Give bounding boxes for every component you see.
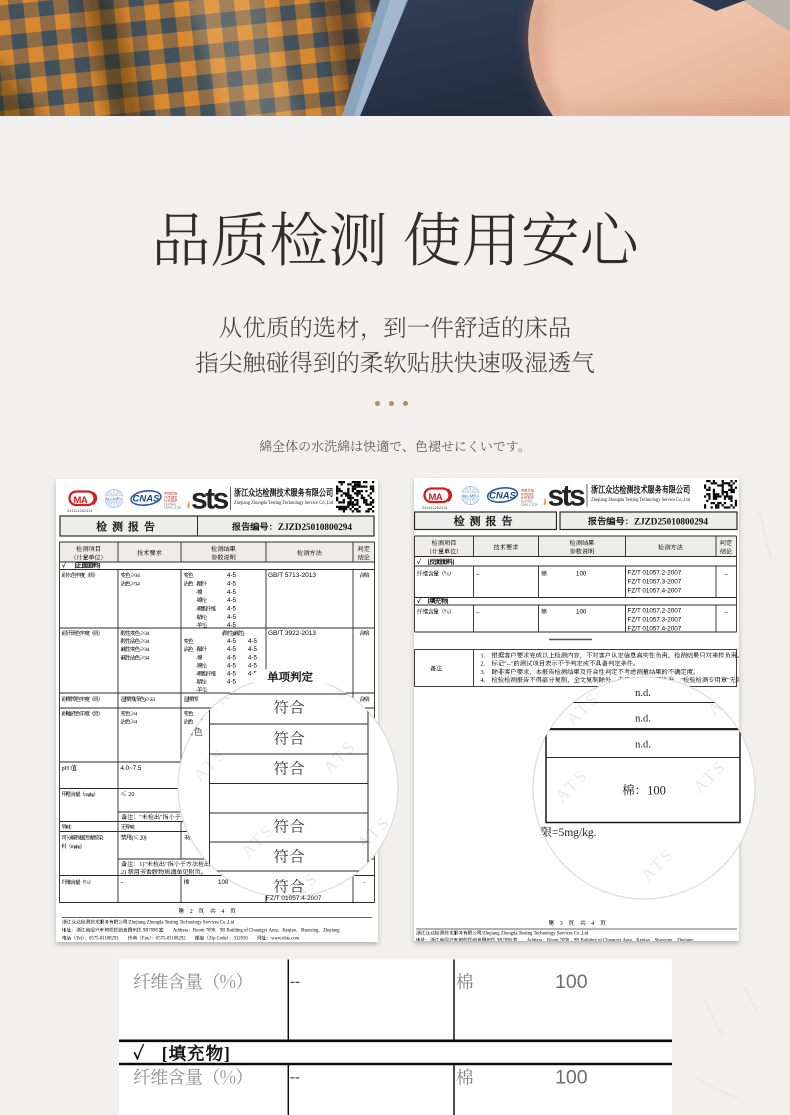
svg-text:-锦纶: -锦纶	[196, 661, 208, 669]
svg-text:符合: 符合	[273, 696, 305, 718]
svg-text:纤维含量（%）: 纤维含量（%）	[416, 607, 454, 616]
svg-text:2) 禁用芳香胺物质清单见附页。: 2) 禁用芳香胺物质清单见附页。	[121, 867, 207, 876]
svg-text:-腈纶: -腈纶	[196, 613, 207, 621]
svg-text:地址：浙江省绍兴市柯桥区创意园东区 9B7098 室 Ad: 地址：浙江省绍兴市柯桥区创意园东区 9B7098 室 Address：Room …	[415, 937, 694, 944]
svg-text:备注："未检出"指小于: 备注："未检出"指小于	[121, 812, 182, 821]
svg-text:100: 100	[218, 879, 229, 886]
svg-text:沾色: 沾色	[184, 645, 195, 653]
svg-text:CNAS L/1726: CNAS L/1726	[521, 503, 539, 507]
svg-text:4-5: 4-5	[227, 654, 237, 661]
svg-text:技术要求: 技术要求	[494, 543, 520, 552]
svg-text:棉: 棉	[456, 969, 474, 994]
svg-text:n.d.: n.d.	[635, 714, 651, 725]
svg-text:4-5: 4-5	[227, 597, 237, 604]
svg-text:4-5: 4-5	[227, 638, 237, 645]
svg-text:n.d.: n.d.	[635, 740, 651, 751]
svg-text:耐摩擦色牢度（级）: 耐摩擦色牢度（级）	[62, 695, 103, 703]
svg-text:4-5: 4-5	[227, 679, 237, 686]
svg-text:酸性:沾色 ≥3-4: 酸性:沾色 ≥3-4	[121, 637, 150, 645]
svg-text:(酸性)(碱性): (酸性)(碱性)	[222, 629, 245, 637]
svg-text:FZ/T 01057.4-2007: FZ/T 01057.4-2007	[628, 626, 682, 633]
svg-text:-锦纶: -锦纶	[196, 596, 208, 604]
svg-text:GB/T 5713-2013: GB/T 5713-2013	[268, 572, 316, 579]
svg-text:FZ/T 01057.4-2007: FZ/T 01057.4-2007	[628, 588, 682, 595]
svg-text:备注: 备注	[430, 664, 442, 673]
svg-text:100: 100	[555, 971, 588, 993]
svg-text:ilac-MRA: ilac-MRA	[105, 496, 123, 501]
svg-text:无异味: 无异味	[121, 823, 136, 831]
svg-text:-醋纤: -醋纤	[196, 645, 207, 653]
svg-text:检测方法: 检测方法	[297, 548, 323, 557]
svg-text:CNAS L/1726: CNAS L/1726	[164, 506, 182, 510]
svg-text:结论: 结论	[720, 547, 732, 556]
svg-text:结论: 结论	[358, 553, 370, 562]
svg-text:4-5: 4-5	[227, 572, 237, 579]
svg-text:棉: 棉	[541, 569, 547, 578]
svg-text:符合: 符合	[273, 815, 305, 837]
svg-text:100: 100	[576, 609, 587, 616]
svg-text:4-5: 4-5	[248, 662, 258, 669]
svg-text:报告编号：ZJZD25010800294: 报告编号：ZJZD25010800294	[231, 519, 352, 533]
svg-text:沾色: 沾色	[184, 718, 195, 726]
svg-text:变色: 变色	[184, 637, 195, 645]
svg-text:4-5: 4-5	[227, 606, 237, 613]
svg-text:4-5: 4-5	[227, 671, 237, 678]
svg-text:参数说明: 参数说明	[570, 547, 595, 556]
svg-text:[正面面料]: [正面面料]	[75, 561, 101, 570]
svg-text:FZ/T 01057.3-2007: FZ/T 01057.3-2007	[628, 617, 682, 624]
svg-text:≤ 20: ≤ 20	[121, 789, 135, 798]
svg-text:FZ/T 01057.2-2007: FZ/T 01057.2-2007	[628, 608, 682, 615]
svg-text:100: 100	[576, 571, 587, 578]
svg-text:-聚酯纤维: -聚酯纤维	[196, 670, 216, 678]
svg-text:碱性:沾色 ≥3-4: 碱性:沾色 ≥3-4	[120, 653, 150, 661]
svg-text:4-5: 4-5	[227, 614, 237, 621]
svg-text:耐水色牢度（级）: 耐水色牢度（级）	[62, 571, 98, 579]
svg-text:技术要求: 技术要求	[137, 548, 163, 557]
svg-text:符合: 符合	[273, 875, 305, 897]
svg-text:4-5: 4-5	[227, 580, 237, 587]
svg-text:湿摩擦(深色)≥ 2-3: 湿摩擦(深色)≥ 2-3	[121, 695, 156, 703]
svg-text:合格: 合格	[359, 629, 370, 637]
svg-text:MA: MA	[74, 495, 88, 506]
svg-text:[反面面料]: [反面面料]	[428, 557, 455, 566]
svg-text:纤维含量（%）: 纤维含量（%）	[416, 569, 454, 578]
svg-text:4.0~7.5: 4.0~7.5	[121, 765, 142, 772]
svg-text:禁用(≤ 20): 禁用(≤ 20)	[121, 833, 147, 842]
svg-text:检测方法: 检测方法	[658, 543, 684, 552]
svg-text:浙江众达检测技术服务有限公司: 浙江众达检测技术服务有限公司	[234, 485, 333, 499]
svg-text:浙江众达检测技术服务有限公司/Zhejiang Zhongd: 浙江众达检测技术服务有限公司/Zhejiang Zhongda Testing …	[62, 919, 235, 926]
svg-text:耐汗渍色牢度（级）: 耐汗渍色牢度（级）	[62, 629, 103, 637]
svg-text:4-5: 4-5	[227, 662, 237, 669]
svg-text:变色 ≥3-4: 变色 ≥3-4	[121, 571, 141, 579]
svg-text:n.d.: n.d.	[635, 688, 651, 699]
svg-text:可分解致癌芳香胺染: 可分解致癌芳香胺染	[62, 834, 104, 842]
svg-text:ilac-MRA: ilac-MRA	[462, 493, 480, 498]
svg-text:241111262431: 241111262431	[67, 508, 94, 513]
svg-text:-羊毛: -羊毛	[196, 621, 207, 629]
svg-text:Zhejiang Zhongda Testing Techn: Zhejiang Zhongda Testing Technology Serv…	[591, 498, 691, 503]
svg-text:沾色 ≥4: 沾色 ≥4	[121, 718, 138, 726]
svg-text:GB/T 3922-2013: GB/T 3922-2013	[268, 630, 316, 637]
svg-text:检测报告: 检测报告	[454, 513, 518, 529]
svg-text:-醋纤: -醋纤	[196, 579, 207, 587]
svg-text:Zhejiang Zhongda Testing Techn: Zhejiang Zhongda Testing Technology Serv…	[234, 501, 334, 506]
svg-text:地址：浙江省绍兴市柯桥区创意园东区 9B7098 室 Ad: 地址：浙江省绍兴市柯桥区创意园东区 9B7098 室 Address：Room …	[61, 927, 340, 934]
svg-text:sts: sts	[191, 483, 229, 516]
svg-text:料（mg/kg）: 料（mg/kg）	[62, 842, 85, 850]
svg-text:FZ/T 01057.3-2007: FZ/T 01057.3-2007	[628, 579, 682, 586]
svg-text:（计量单位）: （计量单位）	[426, 547, 462, 556]
svg-text:-羊毛: -羊毛	[196, 686, 207, 694]
svg-text:沾色: 沾色	[184, 579, 195, 587]
svg-text:241111262431: 241111262431	[422, 505, 449, 510]
svg-text:合格: 合格	[359, 695, 370, 703]
svg-text:sts: sts	[548, 480, 586, 513]
svg-text:限=5mg/kg.: 限=5mg/kg.	[541, 824, 597, 840]
svg-text:纤维含量（%）: 纤维含量（%）	[133, 1064, 253, 1090]
svg-text:4-5: 4-5	[248, 646, 258, 653]
svg-text:-聚酯纤维: -聚酯纤维	[196, 605, 216, 613]
svg-text:报告编号：ZJZD25010800294: 报告编号：ZJZD25010800294	[587, 514, 708, 528]
svg-text:4-5: 4-5	[248, 638, 258, 645]
svg-text:FZ/T 01057.4-2007: FZ/T 01057.4-2007	[266, 895, 322, 902]
svg-text:参数说明: 参数说明	[211, 553, 236, 562]
svg-text:碱性:变色 ≥3-4: 碱性:变色 ≥3-4	[120, 645, 150, 653]
svg-text:符合: 符合	[273, 845, 305, 867]
svg-text:pH 值: pH 值	[62, 763, 78, 772]
svg-text:MA: MA	[429, 492, 443, 503]
svg-text:FZ/T 01057.2-2007: FZ/T 01057.2-2007	[628, 570, 682, 577]
svg-text:变色 ≥4: 变色 ≥4	[121, 710, 138, 718]
svg-text:变色: 变色	[184, 710, 195, 718]
svg-text:单项判定: 单项判定	[267, 669, 313, 685]
svg-text:耐唾液色牢度（级）: 耐唾液色牢度（级）	[62, 710, 103, 718]
svg-text:棉：100: 棉：100	[622, 781, 666, 799]
svg-text:--: --	[290, 970, 300, 991]
svg-text:异味: 异味	[62, 823, 73, 831]
svg-text:第 3 页 共 4 页: 第 3 页 共 4 页	[548, 918, 608, 927]
svg-text:4-5: 4-5	[227, 646, 237, 653]
svg-text:合格: 合格	[359, 571, 370, 579]
svg-text:CNAS: CNAS	[489, 491, 517, 502]
svg-text:[填充物]: [填充物]	[428, 596, 449, 605]
svg-text:✓ [填充物]: ✓ [填充物]	[133, 1041, 231, 1066]
svg-text:湿摩擦: 湿摩擦	[184, 695, 199, 703]
svg-text:棉: 棉	[456, 1065, 474, 1090]
svg-text:CNAS: CNAS	[133, 494, 161, 505]
svg-text:棉: 棉	[541, 607, 547, 616]
svg-text:浙江众达检测技术服务有限公司/Zhejiang Zhongd: 浙江众达检测技术服务有限公司/Zhejiang Zhongda Testing …	[416, 930, 589, 937]
svg-text:电话（Tel）：0575-81108293 传真（Fax）: 电话（Tel）：0575-81108293 传真（Fax）：0575-81108…	[62, 935, 300, 942]
svg-text:第 2 页 共 4 页: 第 2 页 共 4 页	[178, 906, 238, 915]
svg-text:-腈纶: -腈纶	[196, 678, 207, 686]
svg-text:酸性:变色 ≥3-4: 酸性:变色 ≥3-4	[121, 629, 150, 637]
svg-text:4-5: 4-5	[248, 654, 258, 661]
svg-text:沾色 ≥3-4: 沾色 ≥3-4	[121, 579, 141, 587]
svg-text:纤维含量（%）: 纤维含量（%）	[62, 878, 93, 886]
svg-text:浙江众达检测技术服务有限公司: 浙江众达检测技术服务有限公司	[591, 482, 690, 496]
svg-text:检测报告: 检测报告	[96, 519, 160, 535]
svg-text:变色: 变色	[184, 571, 195, 579]
svg-text:--: --	[290, 1066, 300, 1087]
svg-text:甲醛含量（mg/kg）: 甲醛含量（mg/kg）	[62, 790, 98, 798]
svg-text:纤维含量（%）: 纤维含量（%）	[133, 968, 253, 994]
svg-text:符合: 符合	[273, 757, 305, 779]
svg-text:4-5: 4-5	[227, 589, 237, 596]
svg-text:符合: 符合	[273, 727, 305, 749]
svg-text:100: 100	[555, 1067, 588, 1089]
